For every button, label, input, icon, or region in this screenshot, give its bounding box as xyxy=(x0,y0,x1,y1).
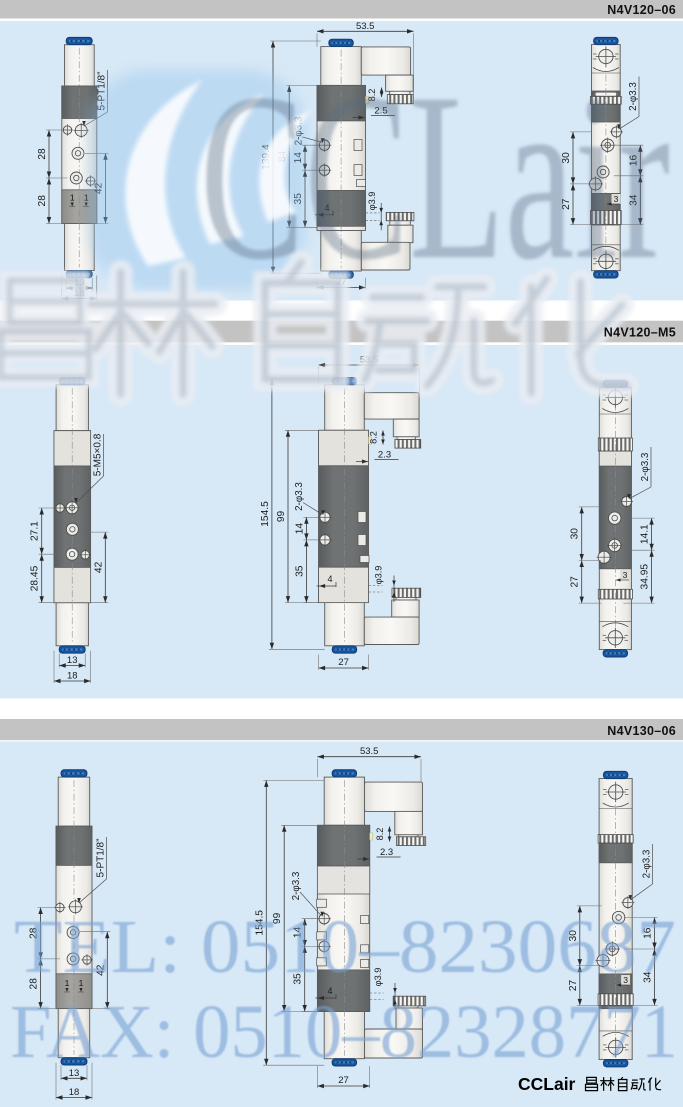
svg-text:28: 28 xyxy=(37,148,48,160)
svg-text:18: 18 xyxy=(67,671,78,682)
svg-text:2-φ3.3: 2-φ3.3 xyxy=(640,452,651,481)
svg-text:18: 18 xyxy=(69,1087,80,1098)
svg-text:28: 28 xyxy=(37,195,48,207)
svg-text:154.5: 154.5 xyxy=(260,501,271,527)
svg-text:14.1: 14.1 xyxy=(640,524,651,544)
svg-text:27: 27 xyxy=(338,657,349,668)
svg-text:13: 13 xyxy=(67,655,78,666)
svg-text:27: 27 xyxy=(570,576,581,588)
svg-text:8.2: 8.2 xyxy=(369,431,379,444)
svg-text:27.1: 27.1 xyxy=(30,521,41,541)
svg-text:2-φ3.3: 2-φ3.3 xyxy=(291,871,302,900)
svg-text:4: 4 xyxy=(327,574,332,584)
svg-text:N4V120–M5: N4V120–M5 xyxy=(604,326,676,340)
svg-text:TEL: 0510–8230687: TEL: 0510–8230687 xyxy=(14,905,676,989)
svg-text:2.3: 2.3 xyxy=(378,450,391,461)
svg-text:14: 14 xyxy=(294,523,305,535)
svg-text:φ3.9: φ3.9 xyxy=(374,566,384,585)
svg-text:27: 27 xyxy=(338,1075,349,1086)
svg-text:CCLair: CCLair xyxy=(518,1074,576,1094)
svg-text:35: 35 xyxy=(294,565,305,577)
svg-text:CCLair: CCLair xyxy=(200,43,670,309)
svg-text:N4V120–06: N4V120–06 xyxy=(607,3,676,17)
svg-text:1: 1 xyxy=(70,193,75,203)
svg-text:28.45: 28.45 xyxy=(30,565,41,591)
svg-text:53.5: 53.5 xyxy=(360,746,379,757)
svg-text:5-M5×0.8: 5-M5×0.8 xyxy=(93,433,104,476)
svg-text:5-PT1/8”: 5-PT1/8” xyxy=(96,839,107,878)
svg-text:42: 42 xyxy=(93,561,104,573)
svg-text:8.2: 8.2 xyxy=(375,828,385,841)
svg-text:N4V130–06: N4V130–06 xyxy=(607,724,676,738)
svg-text:34.95: 34.95 xyxy=(640,564,651,590)
svg-text:2-φ3.3: 2-φ3.3 xyxy=(294,482,305,511)
svg-text:53.5: 53.5 xyxy=(356,21,375,32)
svg-text:2.3: 2.3 xyxy=(380,847,393,858)
svg-text:99: 99 xyxy=(276,511,287,523)
svg-text:3: 3 xyxy=(623,570,628,580)
svg-text:30: 30 xyxy=(570,528,581,540)
svg-text:FAX: 0510–82328771: FAX: 0510–82328771 xyxy=(10,990,678,1074)
svg-text:2-φ3.3: 2-φ3.3 xyxy=(642,849,653,878)
